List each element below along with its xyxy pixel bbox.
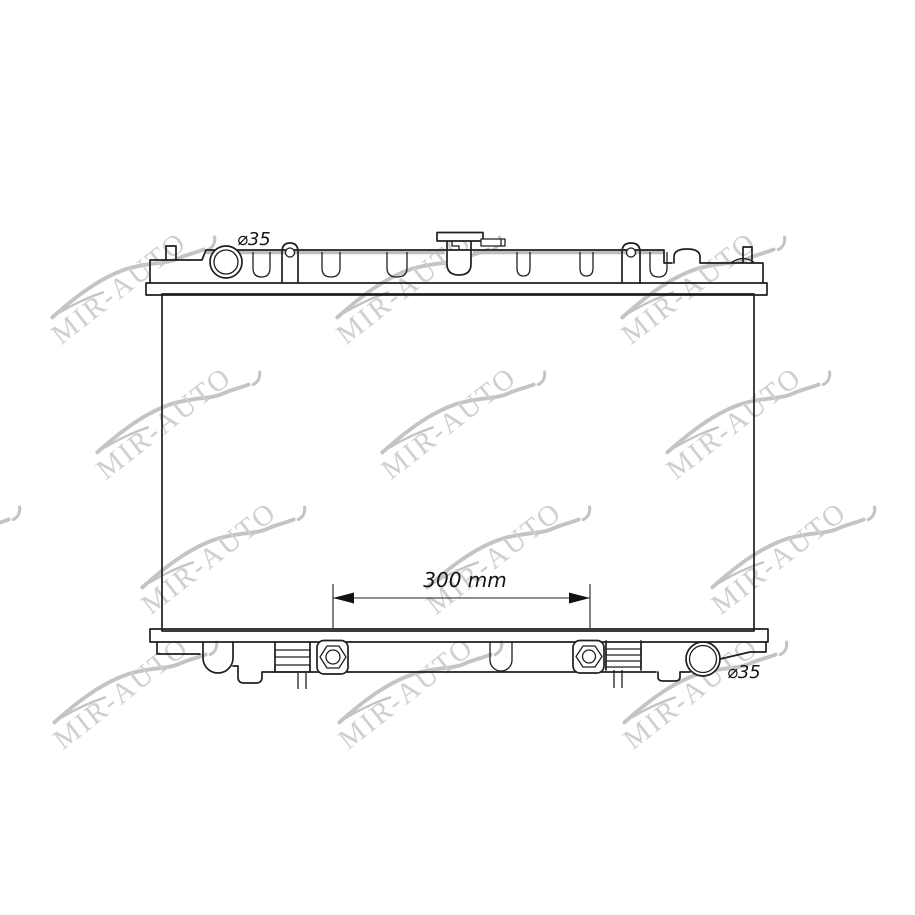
hole-bracket-left: [282, 243, 298, 283]
slot: [580, 252, 593, 276]
outlet-diameter-label: ⌀35: [727, 662, 761, 683]
watermark: [136, 496, 305, 621]
h-bracket-left: [275, 642, 310, 672]
drain-pipe-left: [298, 673, 306, 689]
watermark: [46, 226, 215, 351]
watermark: [333, 631, 502, 756]
watermark: [48, 631, 217, 756]
hole-bracket-right: [622, 243, 640, 283]
dimension-annotation: 300 mm: [333, 568, 590, 628]
slot: [253, 252, 270, 277]
bracket-hole: [286, 248, 295, 257]
bracket-rung: [275, 650, 310, 657]
watermark: [661, 361, 830, 486]
inlet-diameter-label: ⌀35: [237, 229, 271, 250]
bracket-rung: [606, 661, 641, 667]
watermark: [421, 496, 590, 621]
watermark: [376, 361, 545, 486]
arrowhead-right: [569, 593, 590, 604]
watermark: [706, 496, 875, 621]
bracket-rung: [275, 665, 310, 672]
slot: [517, 252, 530, 276]
watermark: [0, 496, 20, 621]
arrowhead-left: [333, 593, 354, 604]
mount-distance-label: 300 mm: [423, 568, 507, 592]
bracket-hole: [627, 248, 636, 257]
outlet-port-outer: [686, 642, 720, 676]
neck-body: [447, 251, 471, 275]
filler-cap: [437, 233, 483, 242]
h-bracket-right: [606, 641, 641, 670]
inlet-port: [210, 246, 242, 278]
outlet-port: [686, 642, 720, 676]
watermark: [91, 361, 260, 486]
watermark: [616, 226, 785, 351]
radiator-line-drawing: MIR-AUTO: [0, 0, 915, 915]
slot: [322, 252, 340, 277]
watermark: [331, 226, 500, 351]
hex-fitting-right: [573, 641, 604, 674]
inlet-port-outer: [210, 246, 242, 278]
hex-fitting-left: [317, 641, 348, 675]
radiator-diagram-page: MIR-AUTO: [0, 0, 915, 915]
bracket-rung: [606, 649, 641, 655]
